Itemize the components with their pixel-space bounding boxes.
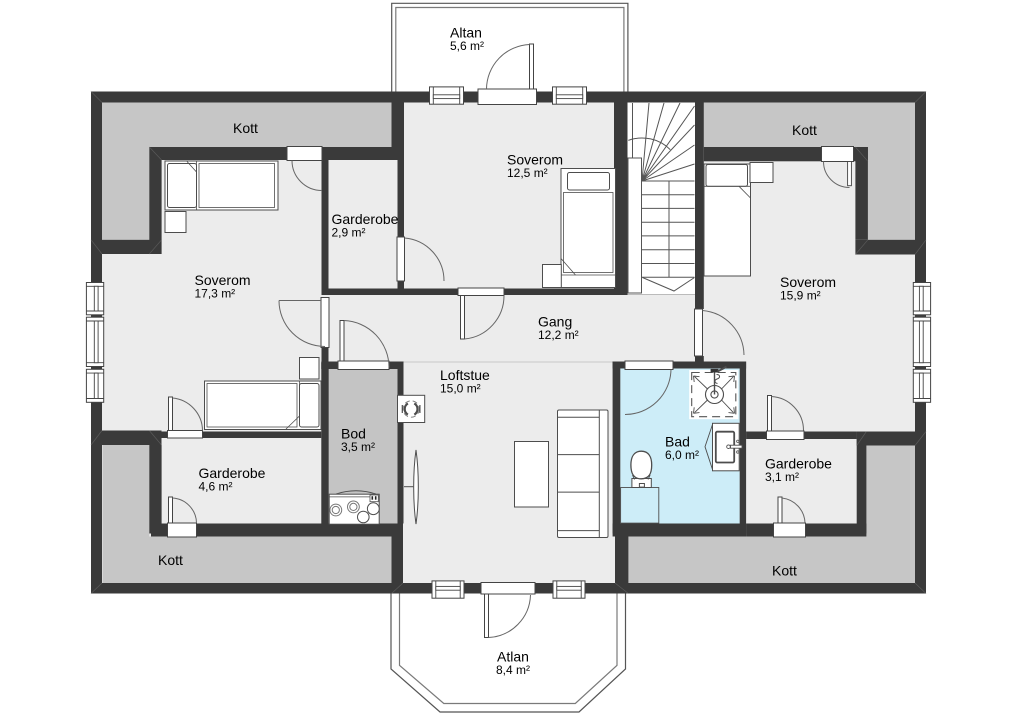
svg-text:15,0 m²: 15,0 m² [440, 382, 481, 396]
svg-text:Kott: Kott [772, 563, 797, 579]
svg-text:2,9 m²: 2,9 m² [332, 226, 366, 240]
svg-text:5,6 m²: 5,6 m² [450, 39, 484, 53]
svg-text:17,3 m²: 17,3 m² [195, 287, 236, 301]
svg-text:8,4 m²: 8,4 m² [496, 663, 530, 677]
svg-text:3,1 m²: 3,1 m² [765, 470, 799, 484]
svg-text:12,5 m²: 12,5 m² [507, 166, 548, 180]
svg-text:6,0 m²: 6,0 m² [665, 448, 699, 462]
svg-text:3,5 m²: 3,5 m² [341, 440, 375, 454]
svg-text:4,6 m²: 4,6 m² [199, 480, 233, 494]
svg-text:15,9 m²: 15,9 m² [780, 289, 821, 303]
svg-text:Kott: Kott [158, 552, 183, 568]
svg-text:Kott: Kott [792, 122, 817, 138]
svg-text:Kott: Kott [233, 120, 258, 136]
svg-text:12,2 m²: 12,2 m² [538, 328, 579, 342]
